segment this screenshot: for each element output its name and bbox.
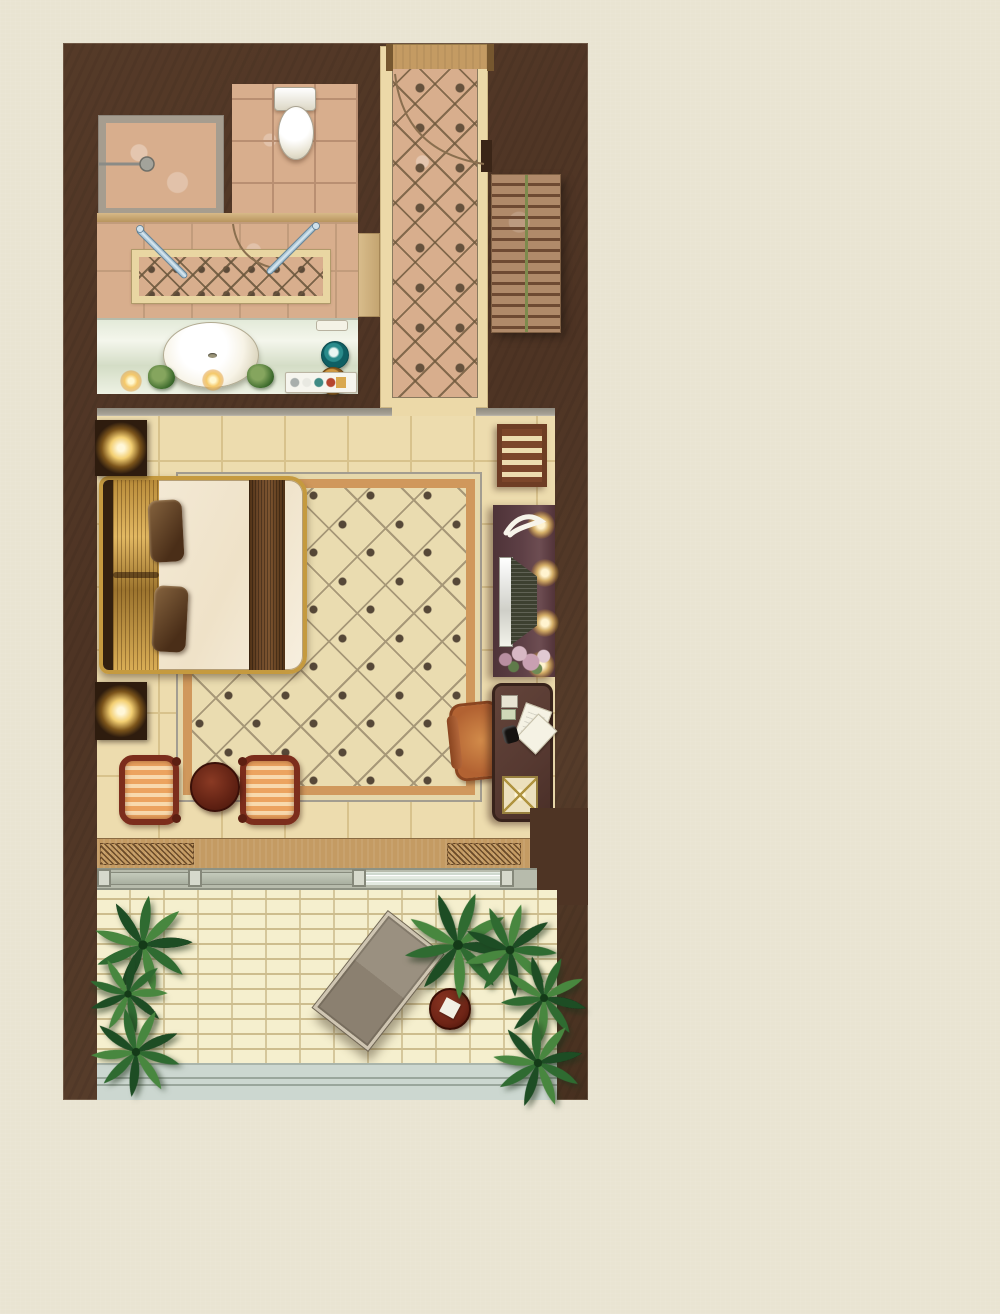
sliding-door-clip [352, 869, 366, 887]
round-side-table [190, 762, 240, 812]
candle-glow [120, 370, 142, 392]
tub-chair [119, 755, 179, 825]
entry-door-jamb [487, 44, 494, 71]
amenity-tray [285, 372, 357, 393]
sliding-door-panel [100, 872, 356, 885]
shower-enclosure [99, 116, 223, 215]
nightstand-with-lamp [95, 682, 147, 740]
bed-headboard [103, 480, 113, 670]
flower-arrangement [495, 643, 553, 676]
amenity-dish-teal [321, 341, 349, 369]
luggage-rack [497, 424, 547, 487]
corridor-diagonal-tile [392, 60, 478, 398]
bathroom-sill [97, 213, 358, 222]
nightstand-with-lamp [95, 420, 147, 476]
vanity-plant [247, 364, 274, 388]
toilet-bowl [278, 106, 314, 160]
sliding-door-clip [97, 869, 111, 887]
decorative-tile-inlay [132, 250, 330, 303]
bed-runner [249, 480, 285, 670]
threshold-hatch-strip [100, 843, 194, 865]
entry-door-hinge-block [481, 140, 492, 172]
console-light-glow [527, 511, 555, 539]
tv-screen [499, 557, 513, 647]
sliding-door-clip [500, 869, 514, 887]
bathroom-door-sill [358, 233, 380, 317]
bed-pillow [151, 585, 188, 653]
desk-notepad [501, 695, 518, 708]
threshold-hatch-strip [447, 843, 521, 865]
king-bed [99, 476, 307, 674]
candle-glow [202, 369, 224, 391]
sliding-door-clip [188, 869, 202, 887]
entry-threshold [388, 44, 490, 69]
entry-door-jamb [386, 44, 393, 71]
palm-plant [481, 1006, 595, 1120]
vanity-plant [148, 365, 175, 389]
floor-plan-canvas [0, 0, 1000, 1314]
exterior-stair-run [492, 175, 560, 332]
tv-console [493, 505, 555, 677]
soap-tray [316, 320, 348, 331]
writing-desk [492, 683, 553, 822]
tub-chair [240, 755, 300, 825]
desk-notepad [501, 709, 516, 720]
bed-pillow [147, 499, 184, 563]
